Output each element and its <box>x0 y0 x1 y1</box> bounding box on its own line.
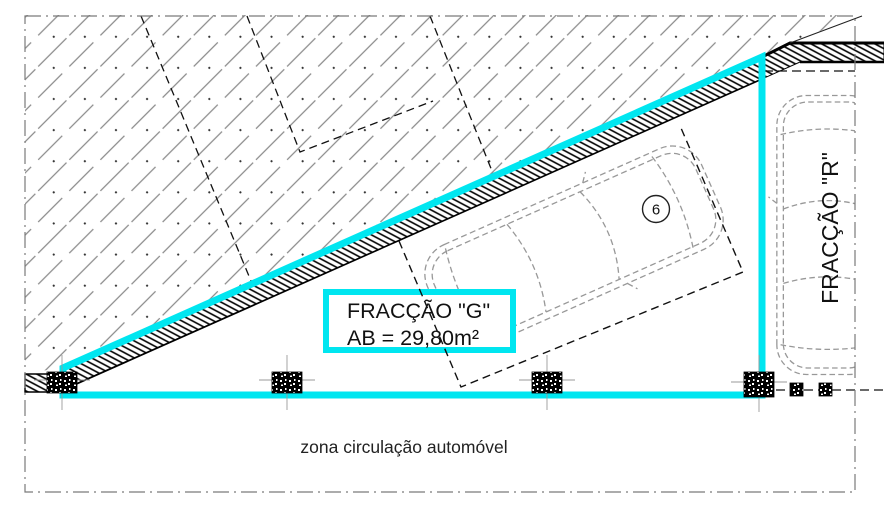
circulation-zone-label: zona circulação automóvel <box>300 437 507 457</box>
column <box>272 372 302 393</box>
post <box>819 383 832 396</box>
fraction-r-label: FRACÇÃO "R" <box>817 152 843 304</box>
column <box>47 372 77 393</box>
column <box>532 372 562 393</box>
post <box>790 383 803 396</box>
column <box>744 372 774 397</box>
architectural-plan-svg: FRACÇÃO "G" AB = 29,80m² 6 FRACÇÃO <box>0 0 884 508</box>
floor-plan-canvas: FRACÇÃO "G" AB = 29,80m² 6 FRACÇÃO <box>0 0 884 508</box>
parking-number: 6 <box>652 202 660 219</box>
fraction-g-label-line1: FRACÇÃO "G" <box>347 298 490 323</box>
fraction-g-area-label: AB = 29,80m² <box>347 326 479 350</box>
